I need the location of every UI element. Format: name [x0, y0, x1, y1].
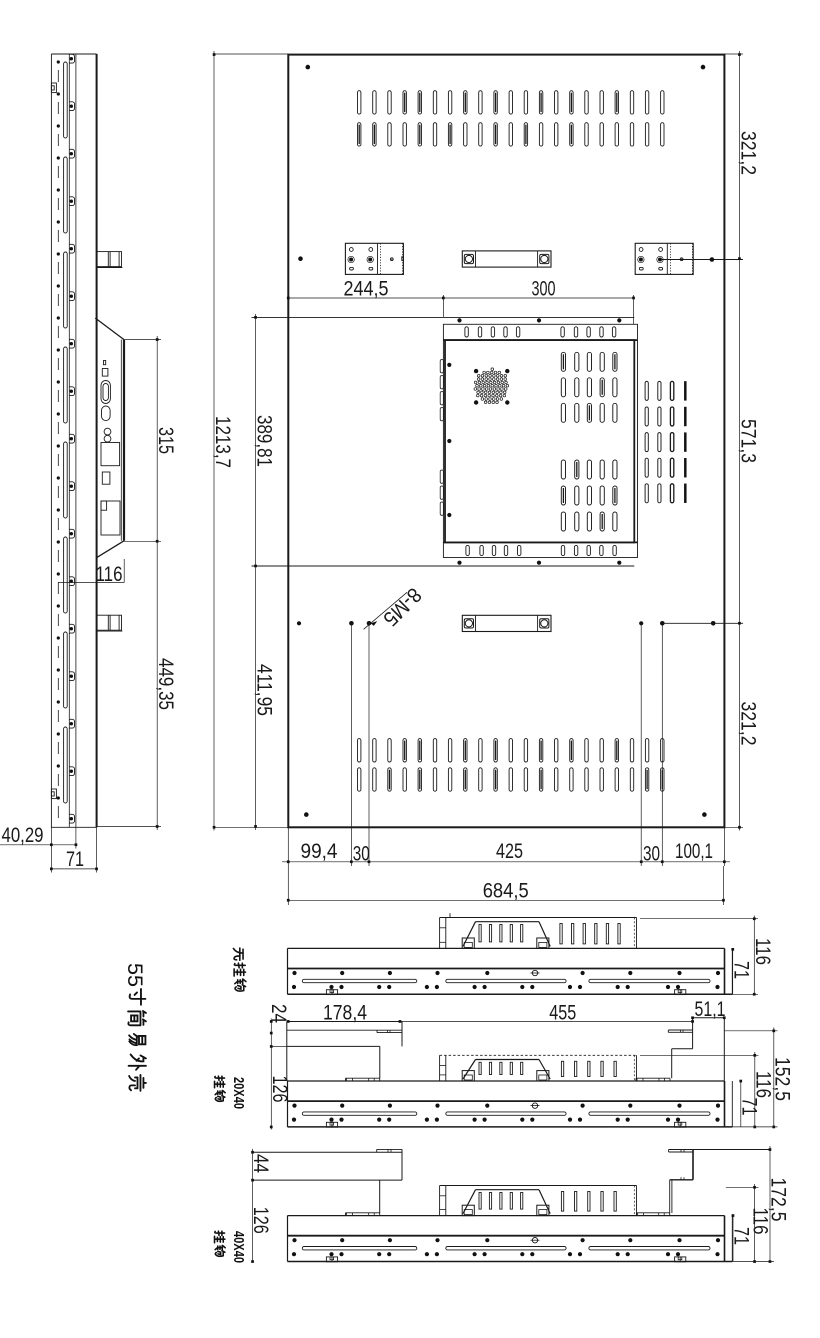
- svg-text:389,81: 389,81: [253, 415, 276, 467]
- svg-text:1213,7: 1213,7: [211, 416, 234, 468]
- svg-text:55: 55: [123, 963, 147, 987]
- svg-text:30: 30: [643, 843, 660, 866]
- svg-text:20X40: 20X40: [230, 1077, 247, 1109]
- svg-text:71: 71: [737, 1098, 760, 1116]
- svg-text:321,2: 321,2: [737, 702, 760, 746]
- svg-text:126: 126: [268, 1076, 291, 1103]
- svg-text:71: 71: [730, 1227, 753, 1245]
- svg-text:116: 116: [96, 563, 123, 586]
- svg-text:571,3: 571,3: [737, 419, 760, 463]
- svg-text:40,29: 40,29: [2, 824, 44, 847]
- svg-text:71: 71: [729, 961, 752, 979]
- svg-text:244,5: 244,5: [344, 278, 389, 301]
- svg-text:315: 315: [154, 427, 177, 454]
- svg-text:300: 300: [532, 278, 556, 301]
- svg-text:116: 116: [751, 1071, 774, 1098]
- svg-text:116: 116: [751, 938, 774, 965]
- svg-text:126: 126: [249, 1207, 272, 1234]
- svg-text:24: 24: [267, 1004, 290, 1023]
- svg-text:71: 71: [66, 848, 84, 871]
- svg-text:100,1: 100,1: [675, 840, 713, 863]
- svg-text:449,35: 449,35: [154, 658, 177, 710]
- svg-text:178,4: 178,4: [323, 1001, 367, 1024]
- svg-text:411,95: 411,95: [253, 664, 276, 716]
- svg-text:684,5: 684,5: [483, 880, 529, 903]
- svg-text:40X40: 40X40: [230, 1231, 247, 1263]
- svg-text:99,4: 99,4: [301, 840, 338, 863]
- svg-text:30: 30: [353, 843, 370, 866]
- svg-text:321,2: 321,2: [737, 131, 760, 175]
- svg-text:455: 455: [549, 1001, 576, 1024]
- svg-text:425: 425: [496, 840, 523, 863]
- svg-text:51,1: 51,1: [695, 998, 726, 1021]
- svg-text:44: 44: [249, 1154, 272, 1173]
